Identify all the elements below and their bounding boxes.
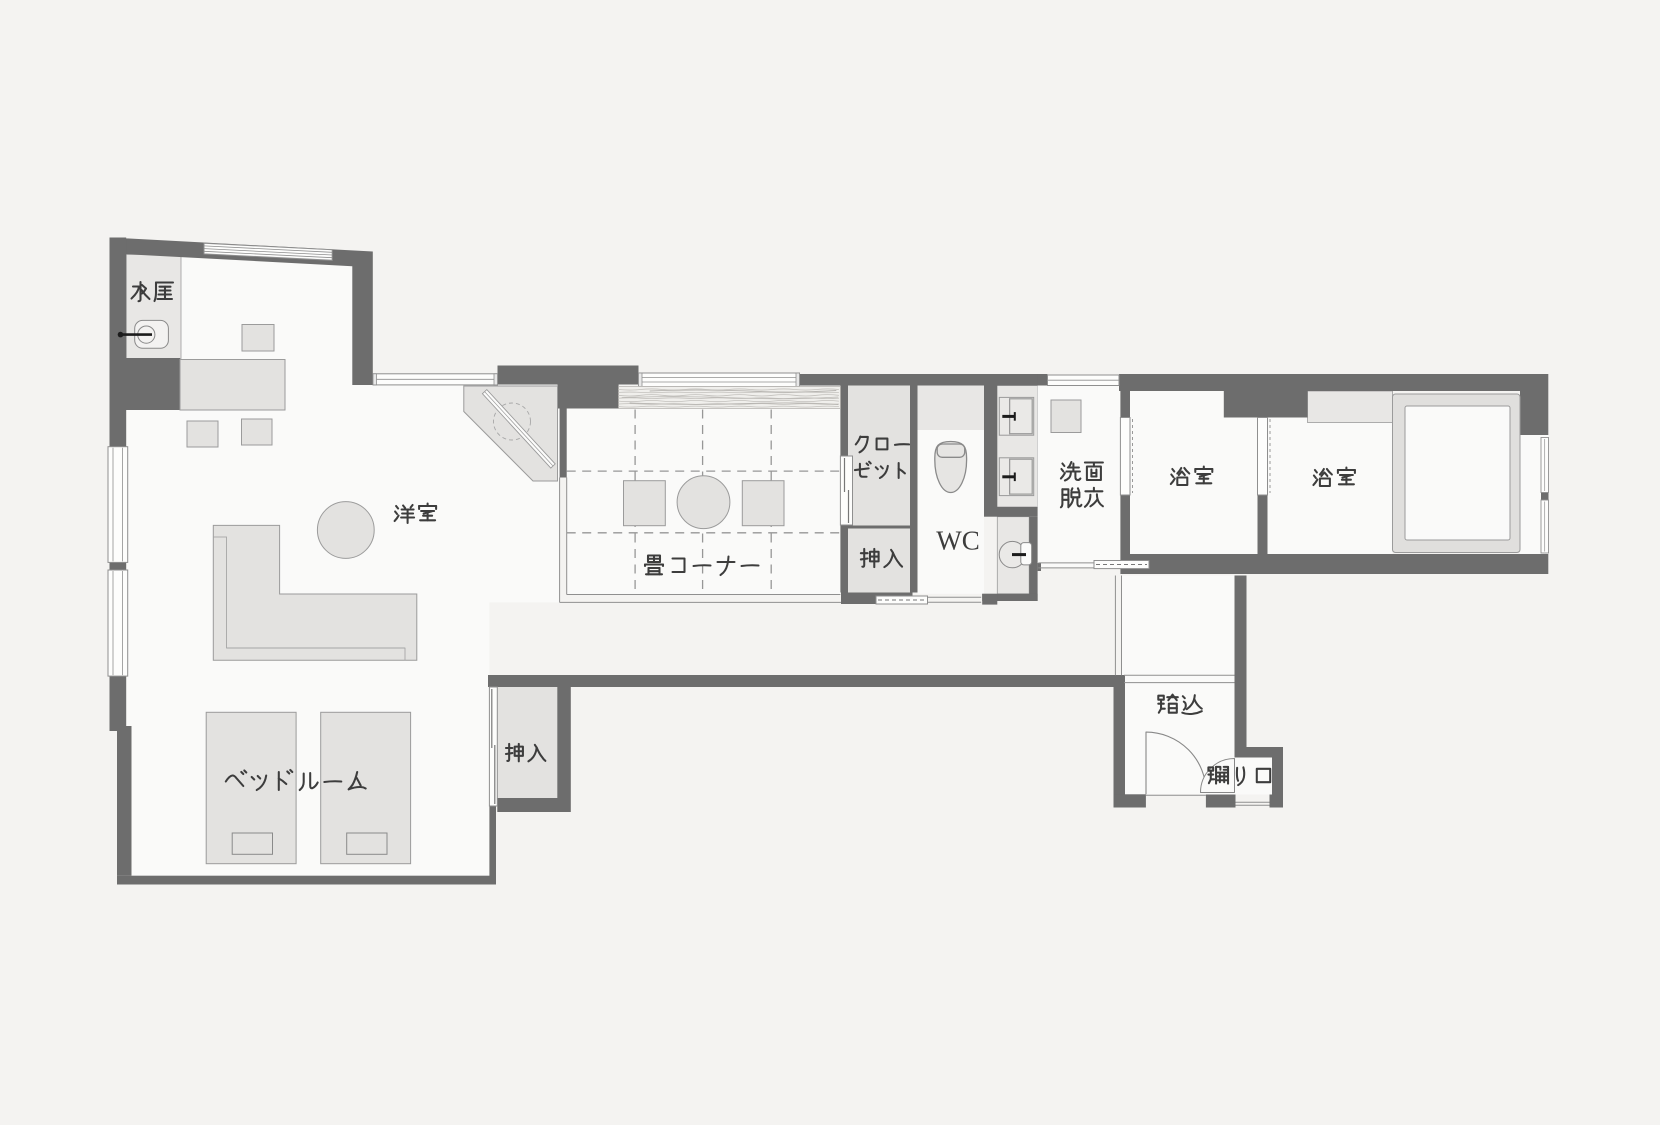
svg-text:WC: WC: [936, 526, 980, 556]
